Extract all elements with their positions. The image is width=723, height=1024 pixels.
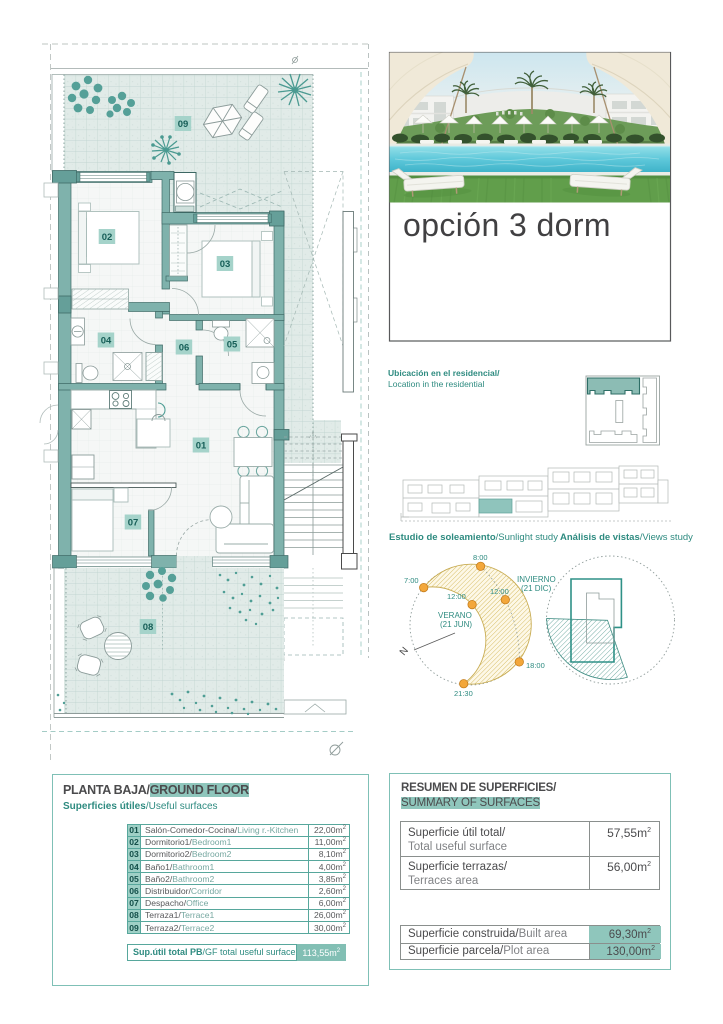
svg-text:(21 JUN): (21 JUN) bbox=[440, 620, 472, 629]
svg-text:01: 01 bbox=[196, 441, 207, 452]
svg-text:04: 04 bbox=[101, 336, 112, 347]
svg-text:08: 08 bbox=[143, 622, 154, 633]
svg-text:09: 09 bbox=[178, 119, 189, 130]
svg-text:8:00: 8:00 bbox=[473, 553, 488, 562]
svg-text:12:00: 12:00 bbox=[447, 592, 466, 601]
svg-text:06: 06 bbox=[179, 343, 190, 354]
svg-text:12:00: 12:00 bbox=[490, 587, 509, 596]
svg-text:7:00: 7:00 bbox=[404, 576, 419, 585]
svg-text:07: 07 bbox=[128, 518, 139, 529]
svg-text:21:30: 21:30 bbox=[454, 689, 473, 698]
svg-text:03: 03 bbox=[220, 259, 231, 270]
svg-text:05: 05 bbox=[227, 340, 238, 351]
svg-text:VERANO: VERANO bbox=[438, 611, 472, 620]
svg-text:N: N bbox=[398, 645, 411, 658]
svg-text:(21 DIC): (21 DIC) bbox=[521, 584, 552, 593]
svg-text:02: 02 bbox=[102, 232, 113, 243]
svg-text:18:00: 18:00 bbox=[526, 661, 545, 670]
svg-text:INVIERNO: INVIERNO bbox=[517, 575, 556, 584]
